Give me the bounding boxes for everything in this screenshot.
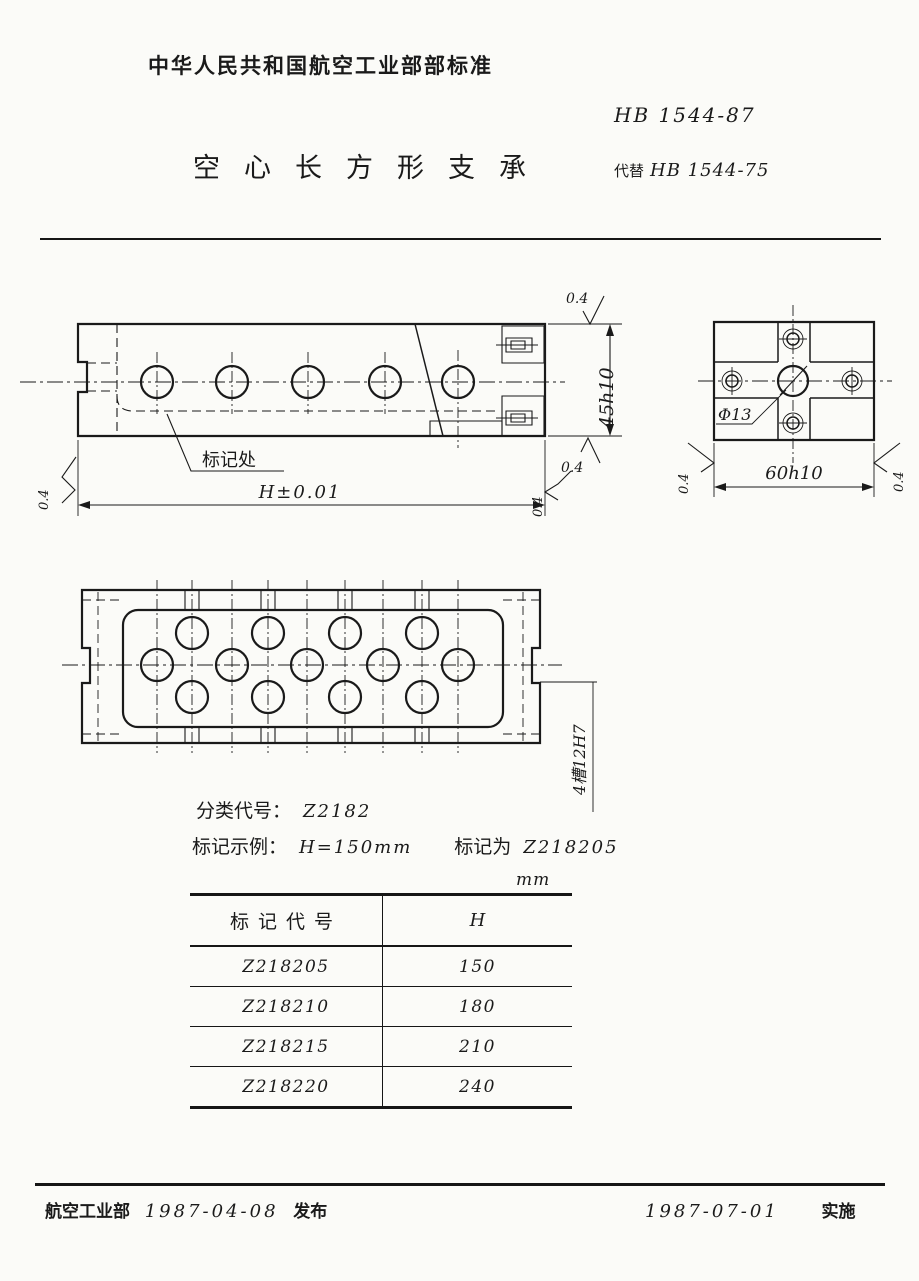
example-result-code: Z218205 bbox=[523, 837, 618, 858]
footer-org: 航空工业部 bbox=[45, 1202, 130, 1221]
example-label: 标记示例： bbox=[192, 837, 287, 858]
front-height-dim: 45h10 bbox=[596, 367, 618, 429]
footer-issue-label: 发布 bbox=[293, 1202, 327, 1221]
engineering-drawings: 45h10 0.4 0.4 0.4 H±0.01 0.4 标记处 bbox=[0, 255, 919, 825]
footer-impl-date: 1987-07-01 bbox=[645, 1201, 779, 1222]
table-cell-h: 240 bbox=[382, 1067, 572, 1106]
finish-mark-side-left: 0.4 bbox=[677, 473, 692, 494]
page-title: 空心长方形支承 bbox=[193, 146, 550, 185]
example-result-label: 标记为 bbox=[454, 837, 511, 858]
table-row: Z218205 150 bbox=[190, 947, 572, 987]
plan-slots-label: 4槽12H7 bbox=[570, 724, 589, 796]
table-row: Z218215 210 bbox=[190, 1027, 572, 1067]
table-cell-code: Z218205 bbox=[190, 947, 382, 986]
table-header-code: 标记代号 bbox=[190, 896, 382, 945]
table-cell-h: 210 bbox=[382, 1027, 572, 1066]
example-condition: H=150mm bbox=[299, 837, 412, 858]
standard-document-page: 中华人民共和国航空工业部部标准 HB 1544-87 空心长方形支承 代替HB … bbox=[0, 0, 919, 1281]
front-width-dim: H±0.01 bbox=[258, 482, 342, 503]
table-unit-label: mm bbox=[516, 870, 550, 890]
marking-place-label: 标记处 bbox=[202, 450, 256, 470]
supersedes-note: 代替HB 1544-75 bbox=[614, 160, 769, 181]
table-header-h: H bbox=[382, 896, 572, 945]
footer-impl-label: 实施 bbox=[822, 1202, 856, 1221]
table-cell-h: 150 bbox=[382, 947, 572, 986]
table-row: Z218210 180 bbox=[190, 987, 572, 1027]
classification-label: 分类代号： bbox=[196, 801, 291, 822]
finish-mark-front-left-end: 0.4 bbox=[37, 489, 52, 510]
document-number: HB 1544-87 bbox=[614, 103, 756, 127]
standard-name: 中华人民共和国航空工业部部标准 bbox=[148, 50, 493, 80]
table-header-row: 标记代号 H bbox=[190, 893, 572, 947]
footer-issue-date: 1987-04-08 bbox=[145, 1201, 279, 1222]
finish-mark-front-top: 0.4 bbox=[566, 291, 588, 307]
table-row: Z218220 240 bbox=[190, 1067, 572, 1109]
side-width-dim: 60h10 bbox=[765, 463, 822, 484]
supersedes-label: 代替 bbox=[614, 163, 644, 180]
footer-issue: 航空工业部 1987-04-08 发布 bbox=[45, 1197, 327, 1222]
classification-note: 分类代号：Z2182 bbox=[196, 796, 371, 823]
side-view-drawing: Φ13 60h10 0.4 0.4 bbox=[677, 305, 907, 497]
plan-view-drawing: 4槽12H7 bbox=[62, 580, 597, 812]
table-cell-code: Z218220 bbox=[190, 1067, 382, 1106]
footer-implementation: 1987-07-01 实施 bbox=[645, 1197, 856, 1222]
marking-code-table: 标记代号 H Z218205 150 Z218210 180 Z218215 2… bbox=[190, 893, 572, 1109]
front-view-drawing: 45h10 0.4 0.4 0.4 H±0.01 0.4 标记处 bbox=[20, 291, 622, 517]
table-cell-code: Z218210 bbox=[190, 987, 382, 1026]
side-hole-dim: Φ13 bbox=[718, 405, 751, 424]
table-cell-code: Z218215 bbox=[190, 1027, 382, 1066]
supersedes-number: HB 1544-75 bbox=[650, 160, 769, 181]
table-cell-h: 180 bbox=[382, 987, 572, 1026]
classification-code: Z2182 bbox=[303, 801, 371, 822]
header-divider bbox=[40, 238, 881, 240]
finish-mark-side-right: 0.4 bbox=[892, 471, 907, 492]
marking-example-note: 标记示例：H=150mm标记为Z218205 bbox=[192, 832, 619, 859]
finish-mark-front-bottom: 0.4 bbox=[561, 460, 583, 476]
footer-divider bbox=[35, 1183, 885, 1186]
